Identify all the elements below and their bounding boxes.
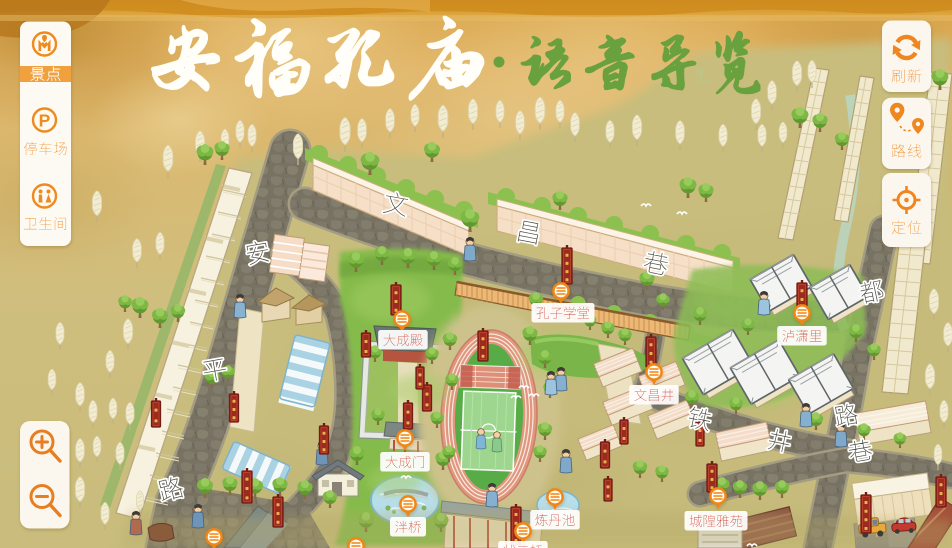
svg-text:P: P: [39, 111, 51, 131]
